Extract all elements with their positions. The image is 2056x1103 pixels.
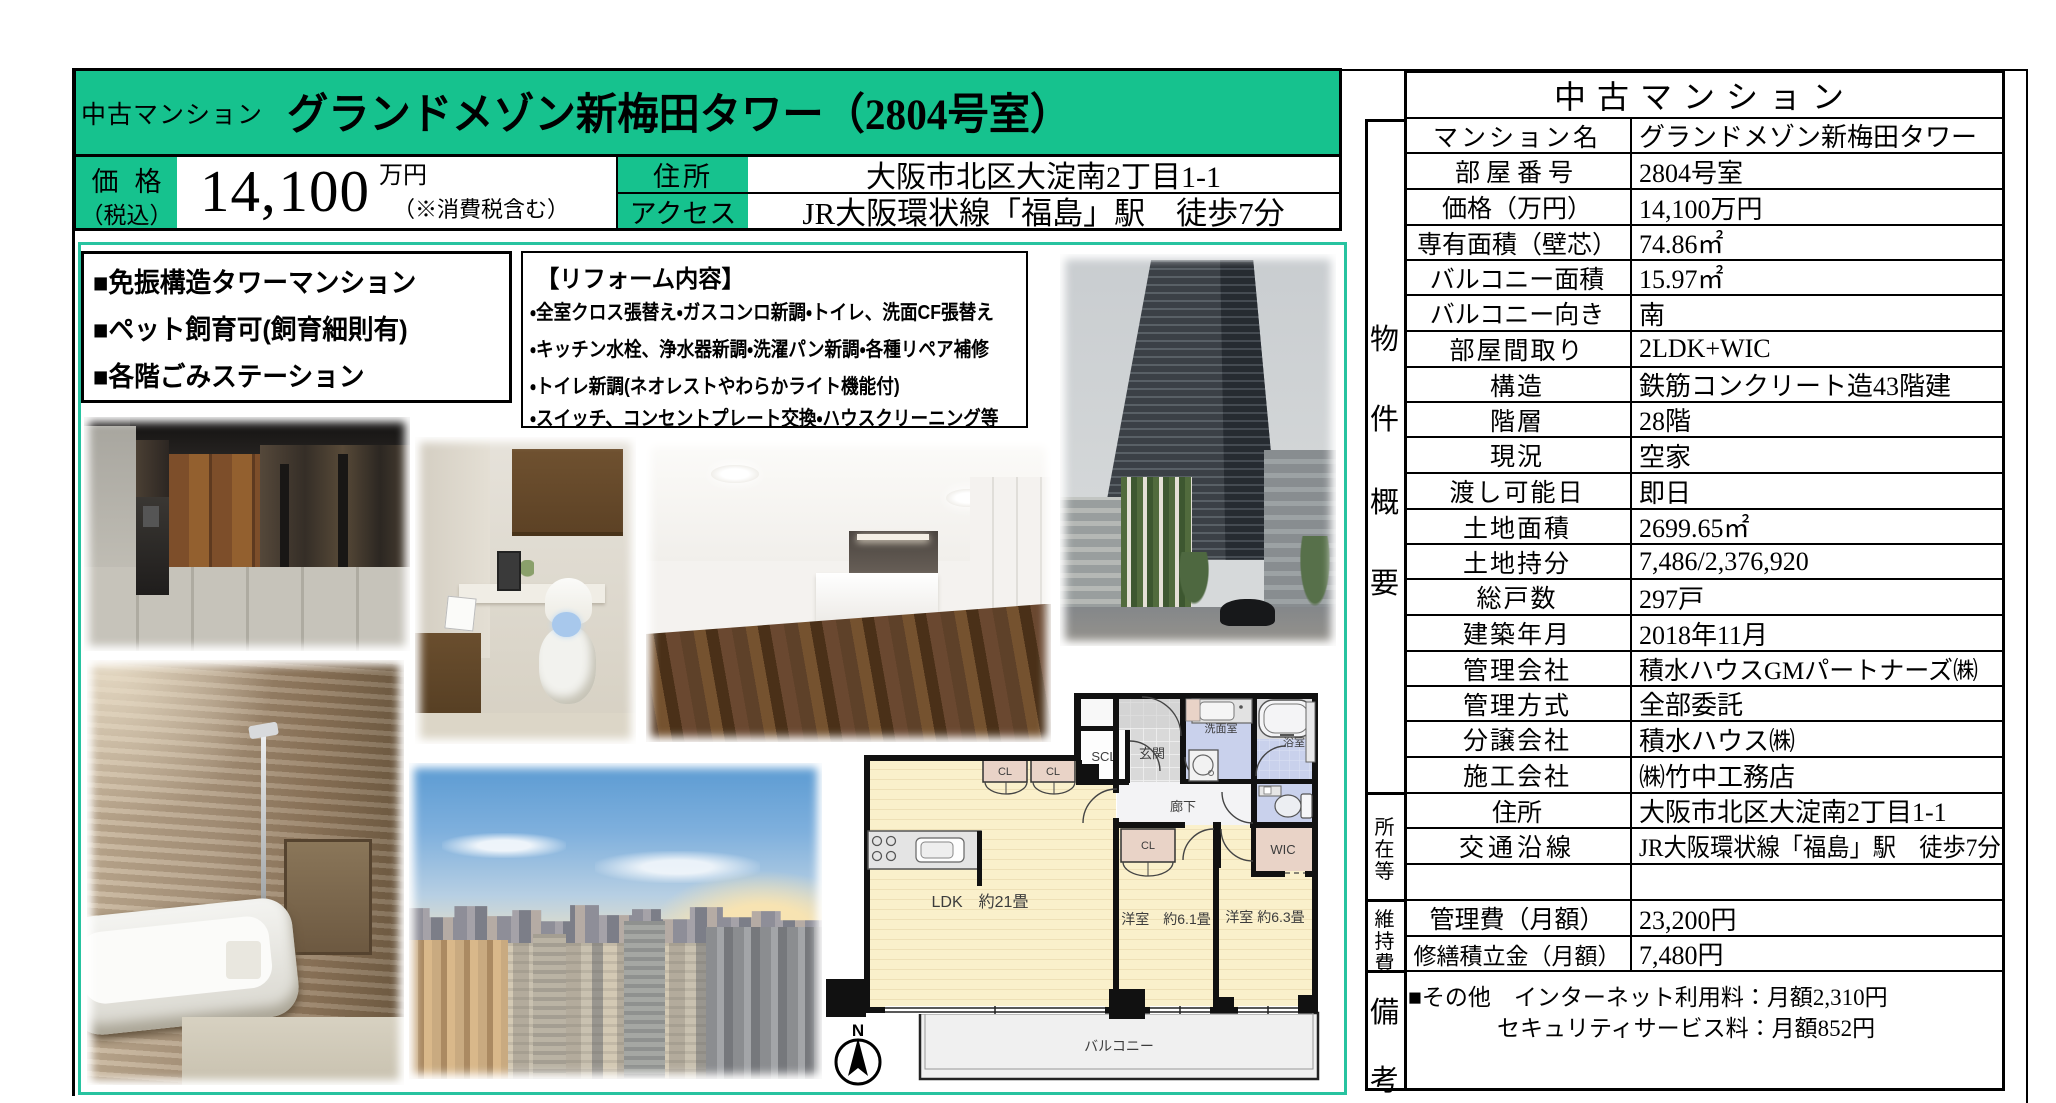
svg-text:N: N bbox=[852, 1021, 864, 1040]
svg-text:WIC: WIC bbox=[1270, 842, 1295, 857]
svg-text:バルコニー: バルコニー bbox=[1084, 1038, 1154, 1054]
svg-text:LDK 約21畳: LDK 約21畳 bbox=[932, 893, 1029, 911]
svg-text:洋室 約6.3畳: 洋室 約6.3畳 bbox=[1225, 909, 1304, 925]
svg-text:廊下: 廊下 bbox=[1170, 799, 1196, 814]
svg-text:洋室 約6.1畳: 洋室 約6.1畳 bbox=[1121, 911, 1210, 927]
svg-text:洗面室: 洗面室 bbox=[1205, 722, 1238, 735]
svg-text:CL: CL bbox=[1046, 766, 1060, 778]
svg-text:CL: CL bbox=[1141, 840, 1155, 852]
svg-text:CL: CL bbox=[998, 766, 1012, 778]
svg-text:玄関: 玄関 bbox=[1139, 746, 1165, 761]
svg-text:SCL: SCL bbox=[1091, 749, 1116, 764]
svg-text:浴室: 浴室 bbox=[1283, 736, 1305, 749]
